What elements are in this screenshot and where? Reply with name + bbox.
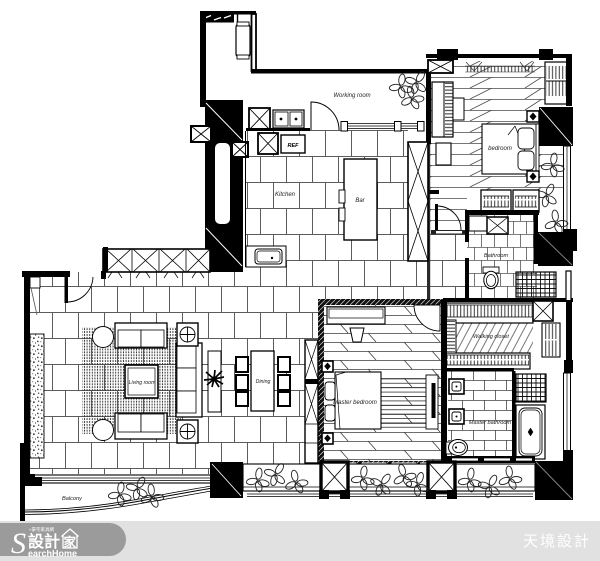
svg-text:Master bedroom: Master bedroom: [333, 400, 377, 406]
svg-text:Living room: Living room: [129, 380, 156, 386]
svg-text:Master bathroom: Master bathroom: [469, 420, 512, 426]
svg-text:S: S: [11, 527, 26, 560]
svg-text:Balcony: Balcony: [62, 496, 83, 502]
svg-text:REF: REF: [288, 143, 300, 149]
svg-text:Bathroom: Bathroom: [484, 253, 509, 259]
svg-text:earchHome: earchHome: [28, 549, 77, 559]
svg-text:天境設計: 天境設計: [523, 532, 591, 550]
svg-text:家: 家: [64, 535, 77, 550]
svg-text:Dining: Dining: [256, 379, 271, 385]
svg-text:Working room: Working room: [333, 93, 370, 99]
svg-text:Kitchen: Kitchen: [275, 192, 296, 198]
svg-text:Walking closet: Walking closet: [473, 334, 509, 340]
svg-text:Bar: Bar: [355, 198, 365, 204]
svg-text:»豪宅家具網: »豪宅家具網: [29, 526, 55, 533]
svg-text:bedroom: bedroom: [488, 146, 512, 152]
